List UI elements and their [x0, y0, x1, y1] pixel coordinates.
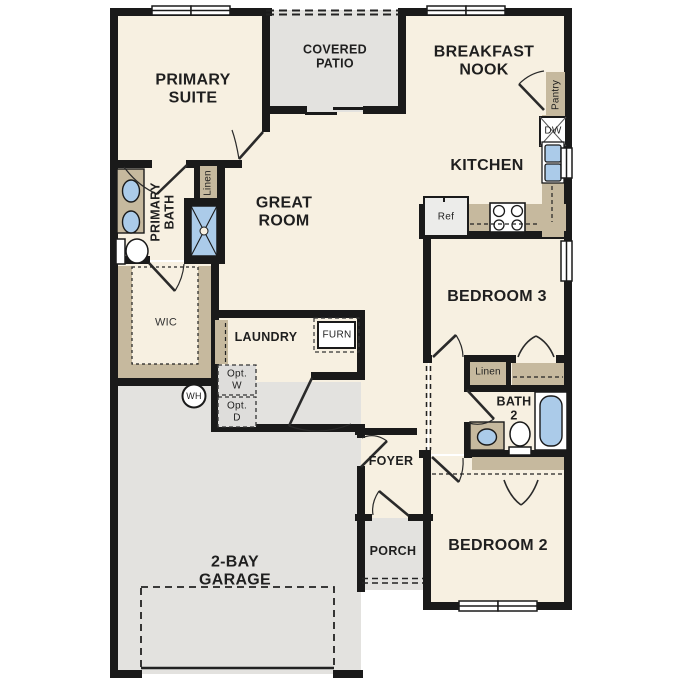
wall-segment	[357, 432, 365, 438]
appliance-label-opt-dryer: Opt. D	[227, 401, 247, 424]
wall-segment	[262, 106, 270, 132]
wall-segment	[423, 355, 432, 363]
appliance-label-opt-washer: Opt. W	[227, 369, 247, 392]
wall-segment	[464, 450, 572, 458]
closet-label-pantry: Pantry	[550, 80, 562, 110]
room-label-wic: WIC	[155, 317, 177, 330]
wall-segment	[110, 378, 219, 386]
wall-segment	[110, 256, 150, 264]
wall-segment	[110, 380, 118, 678]
wall-segment	[419, 231, 572, 239]
room-label-laundry: LAUNDRY	[235, 330, 298, 344]
wall-segment	[110, 8, 272, 16]
room-label-bath2: BATH 2	[497, 395, 532, 424]
wall-segment	[305, 112, 337, 115]
wall-segment	[357, 310, 365, 380]
wall-segment	[333, 670, 363, 678]
wall-segment	[184, 198, 191, 264]
wall-segment	[262, 8, 270, 114]
appliance-label-water-heater: WH	[186, 391, 202, 401]
floor-bedroom2	[429, 456, 568, 606]
wall-segment	[333, 107, 365, 110]
wall-segment	[211, 310, 365, 318]
wall-segment	[423, 450, 431, 610]
room-label-foyer: FOYER	[369, 454, 414, 468]
wall-segment	[363, 106, 406, 114]
wall-segment	[311, 372, 365, 380]
appliance-label-dishwasher: DW	[544, 125, 561, 137]
wall-segment	[423, 602, 572, 610]
room-label-kitchen: KITCHEN	[450, 157, 523, 175]
wall-segment	[419, 450, 430, 458]
room-label-bedroom3: BEDROOM 3	[447, 288, 547, 306]
wall-segment	[398, 8, 572, 16]
room-label-covered-patio: COVERED PATIO	[303, 43, 367, 72]
wall-segment	[464, 385, 572, 392]
wall-segment	[564, 8, 572, 610]
wall-segment	[217, 160, 225, 264]
wall-segment	[355, 514, 372, 521]
floor-plan: PRIMARY SUITE COVERED PATIO BREAKFAST NO…	[0, 0, 687, 687]
wall-segment	[423, 233, 431, 363]
wall-segment	[211, 256, 219, 432]
wall-segment	[110, 670, 142, 678]
wall-segment	[398, 8, 406, 114]
room-label-garage: 2-BAY GARAGE	[199, 554, 271, 591]
closet-label-linen-primary: Linen	[202, 170, 214, 195]
appliance-label-furnace: FURN	[323, 329, 352, 341]
room-label-primary-suite: PRIMARY SUITE	[155, 72, 230, 109]
room-label-primary-bath: PRIMARY BATH	[149, 182, 178, 241]
wall-segment	[357, 520, 365, 592]
room-label-porch: PORCH	[370, 544, 417, 558]
appliance-label-refrigerator: Ref	[438, 211, 454, 223]
floor-foyer	[361, 432, 427, 518]
room-label-great-room: GREAT ROOM	[256, 195, 312, 232]
room-label-breakfast-nook: BREAKFAST NOOK	[434, 44, 534, 81]
wall-segment	[556, 355, 572, 363]
wall-segment	[211, 424, 365, 432]
wall-segment	[357, 466, 365, 520]
room-label-bedroom2: BEDROOM 2	[448, 537, 548, 555]
wall-segment	[110, 8, 118, 386]
wall-segment	[110, 160, 152, 168]
closet-label-linen-hall: Linen	[475, 366, 500, 378]
